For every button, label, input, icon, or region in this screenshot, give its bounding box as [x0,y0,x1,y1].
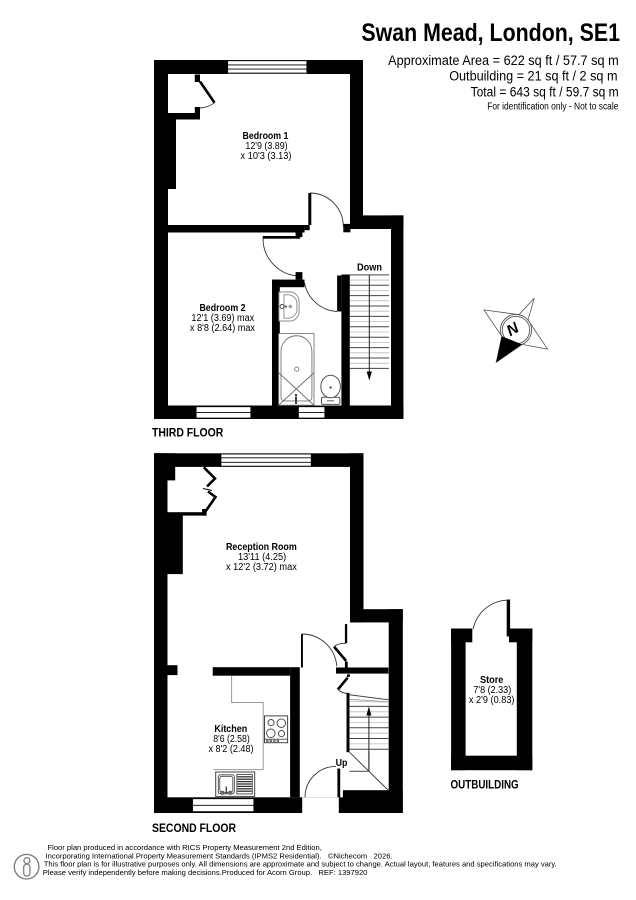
svg-text:Please verify independently be: Please verify independently before makin… [43,868,368,877]
svg-text:x 12'2 (3.72) max: x 12'2 (3.72) max [226,562,297,573]
svg-text:x 2'9 (0.83): x 2'9 (0.83) [469,695,515,706]
svg-text:OUTBUILDING: OUTBUILDING [451,777,519,791]
svg-text:Down: Down [357,263,382,274]
svg-text:Swan Mead, London, SE1: Swan Mead, London, SE1 [361,19,620,47]
svg-text:SECOND FLOOR: SECOND FLOOR [152,821,236,835]
svg-text:x 10'3 (3.13): x 10'3 (3.13) [241,151,292,162]
svg-text:Up: Up [336,758,348,769]
svg-text:Outbuilding = 21 sq ft / 2 sq: Outbuilding = 21 sq ft / 2 sq m [449,69,617,84]
svg-text:x 8'8 (2.64) max: x 8'8 (2.64) max [190,323,255,334]
svg-text:x 8'2 (2.48): x 8'2 (2.48) [208,744,253,755]
svg-text:Approximate Area = 622 sq ft /: Approximate Area = 622 sq ft / 57.7 sq m [388,53,619,68]
svg-text:Total = 643 sq ft / 59.7 sq m: Total = 643 sq ft / 59.7 sq m [471,84,619,99]
svg-text:For identification only - Not: For identification only - Not to scale [487,102,618,113]
svg-text:THIRD FLOOR: THIRD FLOOR [152,426,223,440]
